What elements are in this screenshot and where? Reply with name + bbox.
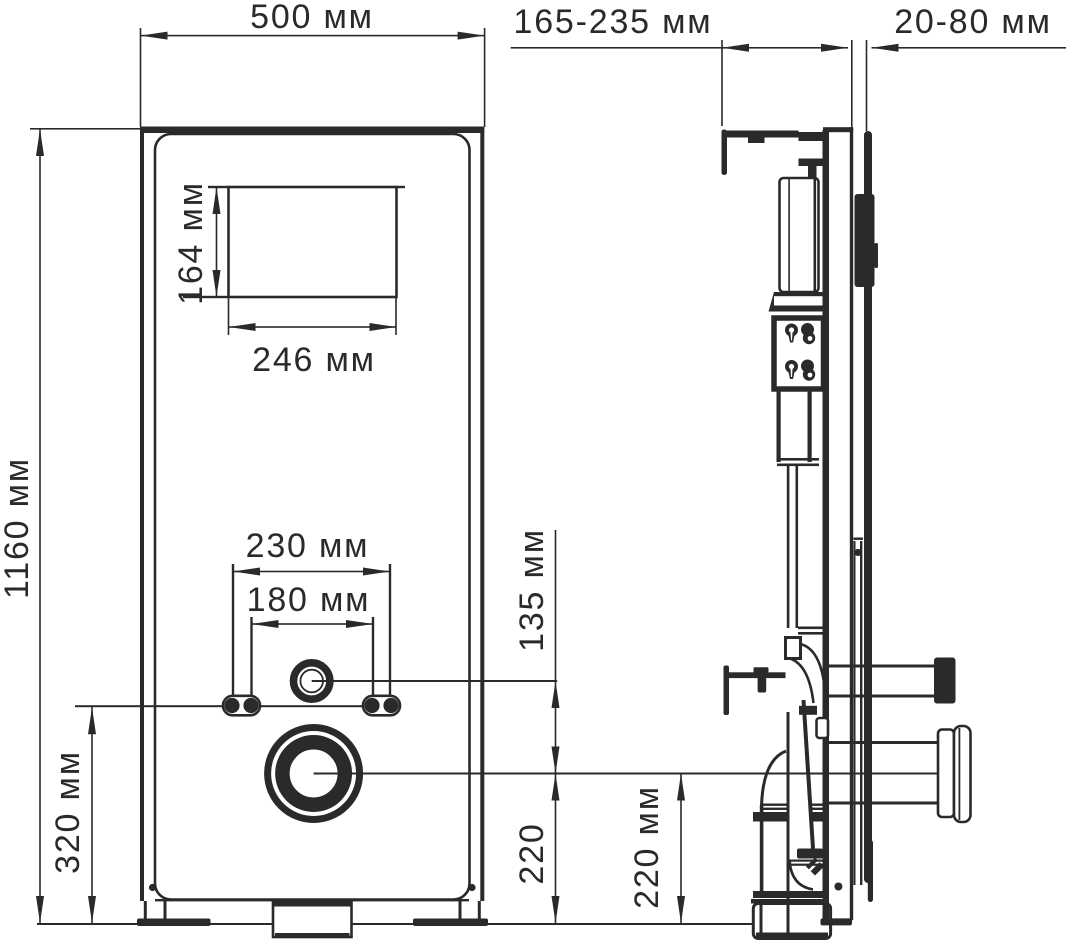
svg-text:220 мм: 220 мм	[628, 785, 666, 909]
svg-text:1160 мм: 1160 мм	[0, 457, 36, 599]
svg-text:230 мм: 230 мм	[246, 527, 370, 565]
svg-text:165-235 мм: 165-235 мм	[514, 3, 713, 41]
svg-text:320 мм: 320 мм	[49, 750, 87, 874]
svg-text:500 мм: 500 мм	[250, 0, 374, 36]
svg-text:246 мм: 246 мм	[252, 341, 376, 379]
svg-text:164 мм: 164 мм	[172, 181, 210, 305]
svg-text:20-80 мм: 20-80 мм	[894, 3, 1052, 41]
svg-text:220: 220	[513, 822, 551, 884]
svg-text:135 мм: 135 мм	[513, 528, 551, 652]
svg-text:180 мм: 180 мм	[247, 581, 371, 619]
